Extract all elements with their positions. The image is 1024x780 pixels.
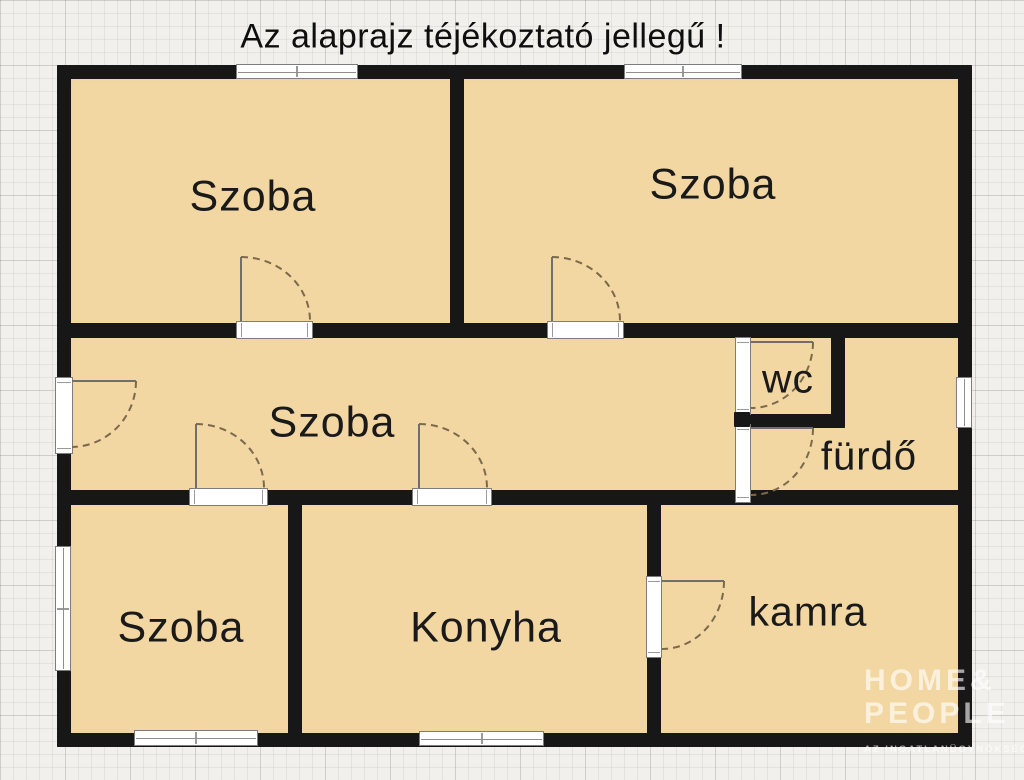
room-label-wc: wc [762, 356, 814, 403]
room-label-szoba-hall: Szoba [269, 399, 396, 448]
door-arc-kamra [662, 581, 724, 649]
watermark-line2: PEOPLE [864, 697, 1024, 730]
door-arc-top-left [241, 257, 310, 321]
watermark: HOME& PEOPLE AZ INGATLANÜGYNÖKSÉG [864, 664, 1024, 756]
room-label-furdo: fürdő [821, 435, 917, 480]
door-swing-overlay [0, 0, 1024, 780]
door-arc-hall-szoba [196, 424, 264, 488]
room-label-szoba-bottom-left: Szoba [118, 604, 245, 653]
wall-wc-furdo-door-separator [734, 412, 750, 427]
floor-plan-image: Az alaprajz téjékoztató jellegű ! [0, 0, 1024, 780]
watermark-tagline: AZ INGATLANÜGYNÖKSÉG [864, 744, 1024, 756]
door-arc-entry [72, 381, 136, 447]
door-arc-furdo [751, 428, 813, 495]
room-label-szoba-top-right: Szoba [650, 161, 777, 210]
door-arc-top-right [552, 257, 620, 321]
door-arc-hall-konyha [419, 424, 487, 488]
room-label-kamra: kamra [749, 589, 868, 636]
room-label-szoba-top-left: Szoba [190, 173, 317, 222]
room-label-konyha: Konyha [410, 604, 562, 653]
watermark-line1: HOME& [864, 664, 1024, 697]
